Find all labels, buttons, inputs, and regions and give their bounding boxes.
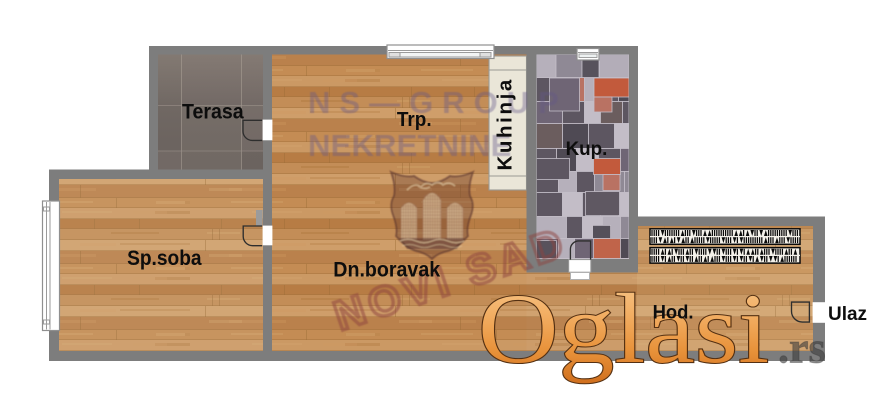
svg-text:Trp.: Trp. [397,109,432,132]
svg-text:Dn.boravak: Dn.boravak [333,258,440,282]
svg-text:Hod.: Hod. [653,302,694,324]
svg-text:Kup.: Kup. [566,139,608,160]
svg-text:Kuhinja: Kuhinja [494,77,517,170]
svg-text:NEKRETNINE: NEKRETNINE [308,128,512,163]
svg-text:Ulaz: Ulaz [828,304,867,325]
svg-text:.rs: .rs [778,324,826,373]
svg-text:NS—GROUP: NS—GROUP [308,85,568,120]
svg-text:Oglasi: Oglasi [478,273,769,383]
svg-text:Terasa: Terasa [182,101,244,124]
svg-text:Sp.soba: Sp.soba [127,247,202,270]
